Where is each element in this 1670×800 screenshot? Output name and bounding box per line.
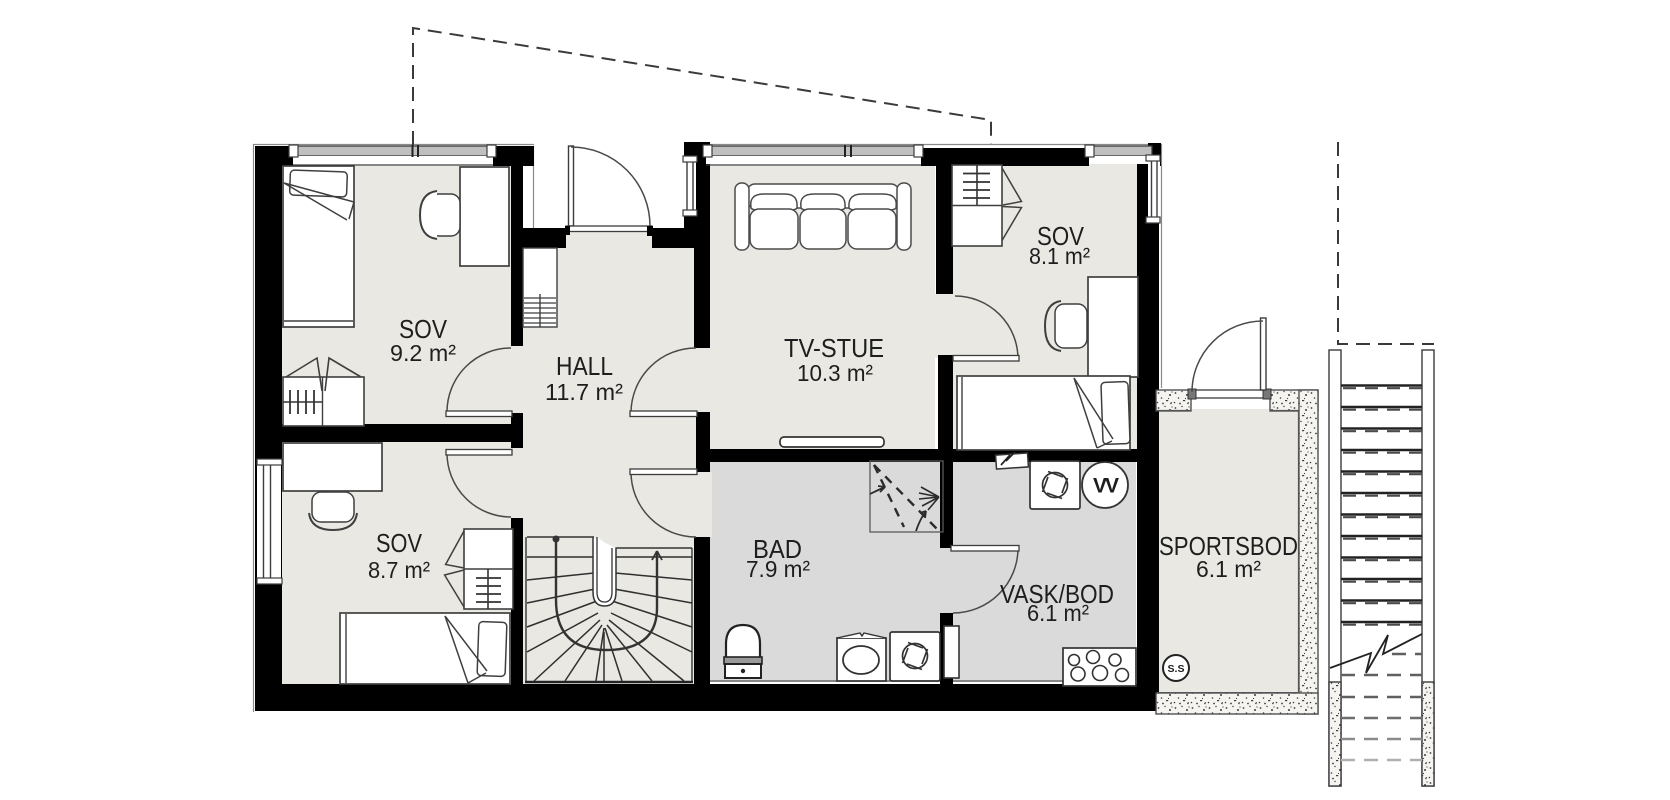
svg-text:10.3 m²: 10.3 m²: [797, 360, 873, 386]
svg-text:VV: VV: [1093, 475, 1119, 498]
svg-text:6.1 m²: 6.1 m²: [1027, 600, 1089, 626]
svg-text:SOV: SOV: [376, 528, 423, 558]
svg-text:HALL: HALL: [556, 351, 613, 381]
svg-text:11.7 m²: 11.7 m²: [545, 379, 623, 405]
svg-text:6.1 m²: 6.1 m²: [1196, 556, 1261, 582]
svg-text:TV-STUE: TV-STUE: [784, 333, 884, 363]
svg-text:8.1 m²: 8.1 m²: [1029, 243, 1090, 269]
svg-text:9.2 m²: 9.2 m²: [390, 340, 456, 366]
svg-text:7.9 m²: 7.9 m²: [746, 556, 810, 582]
svg-text:8.7 m²: 8.7 m²: [368, 557, 430, 583]
svg-text:S.S: S.S: [1168, 663, 1185, 675]
